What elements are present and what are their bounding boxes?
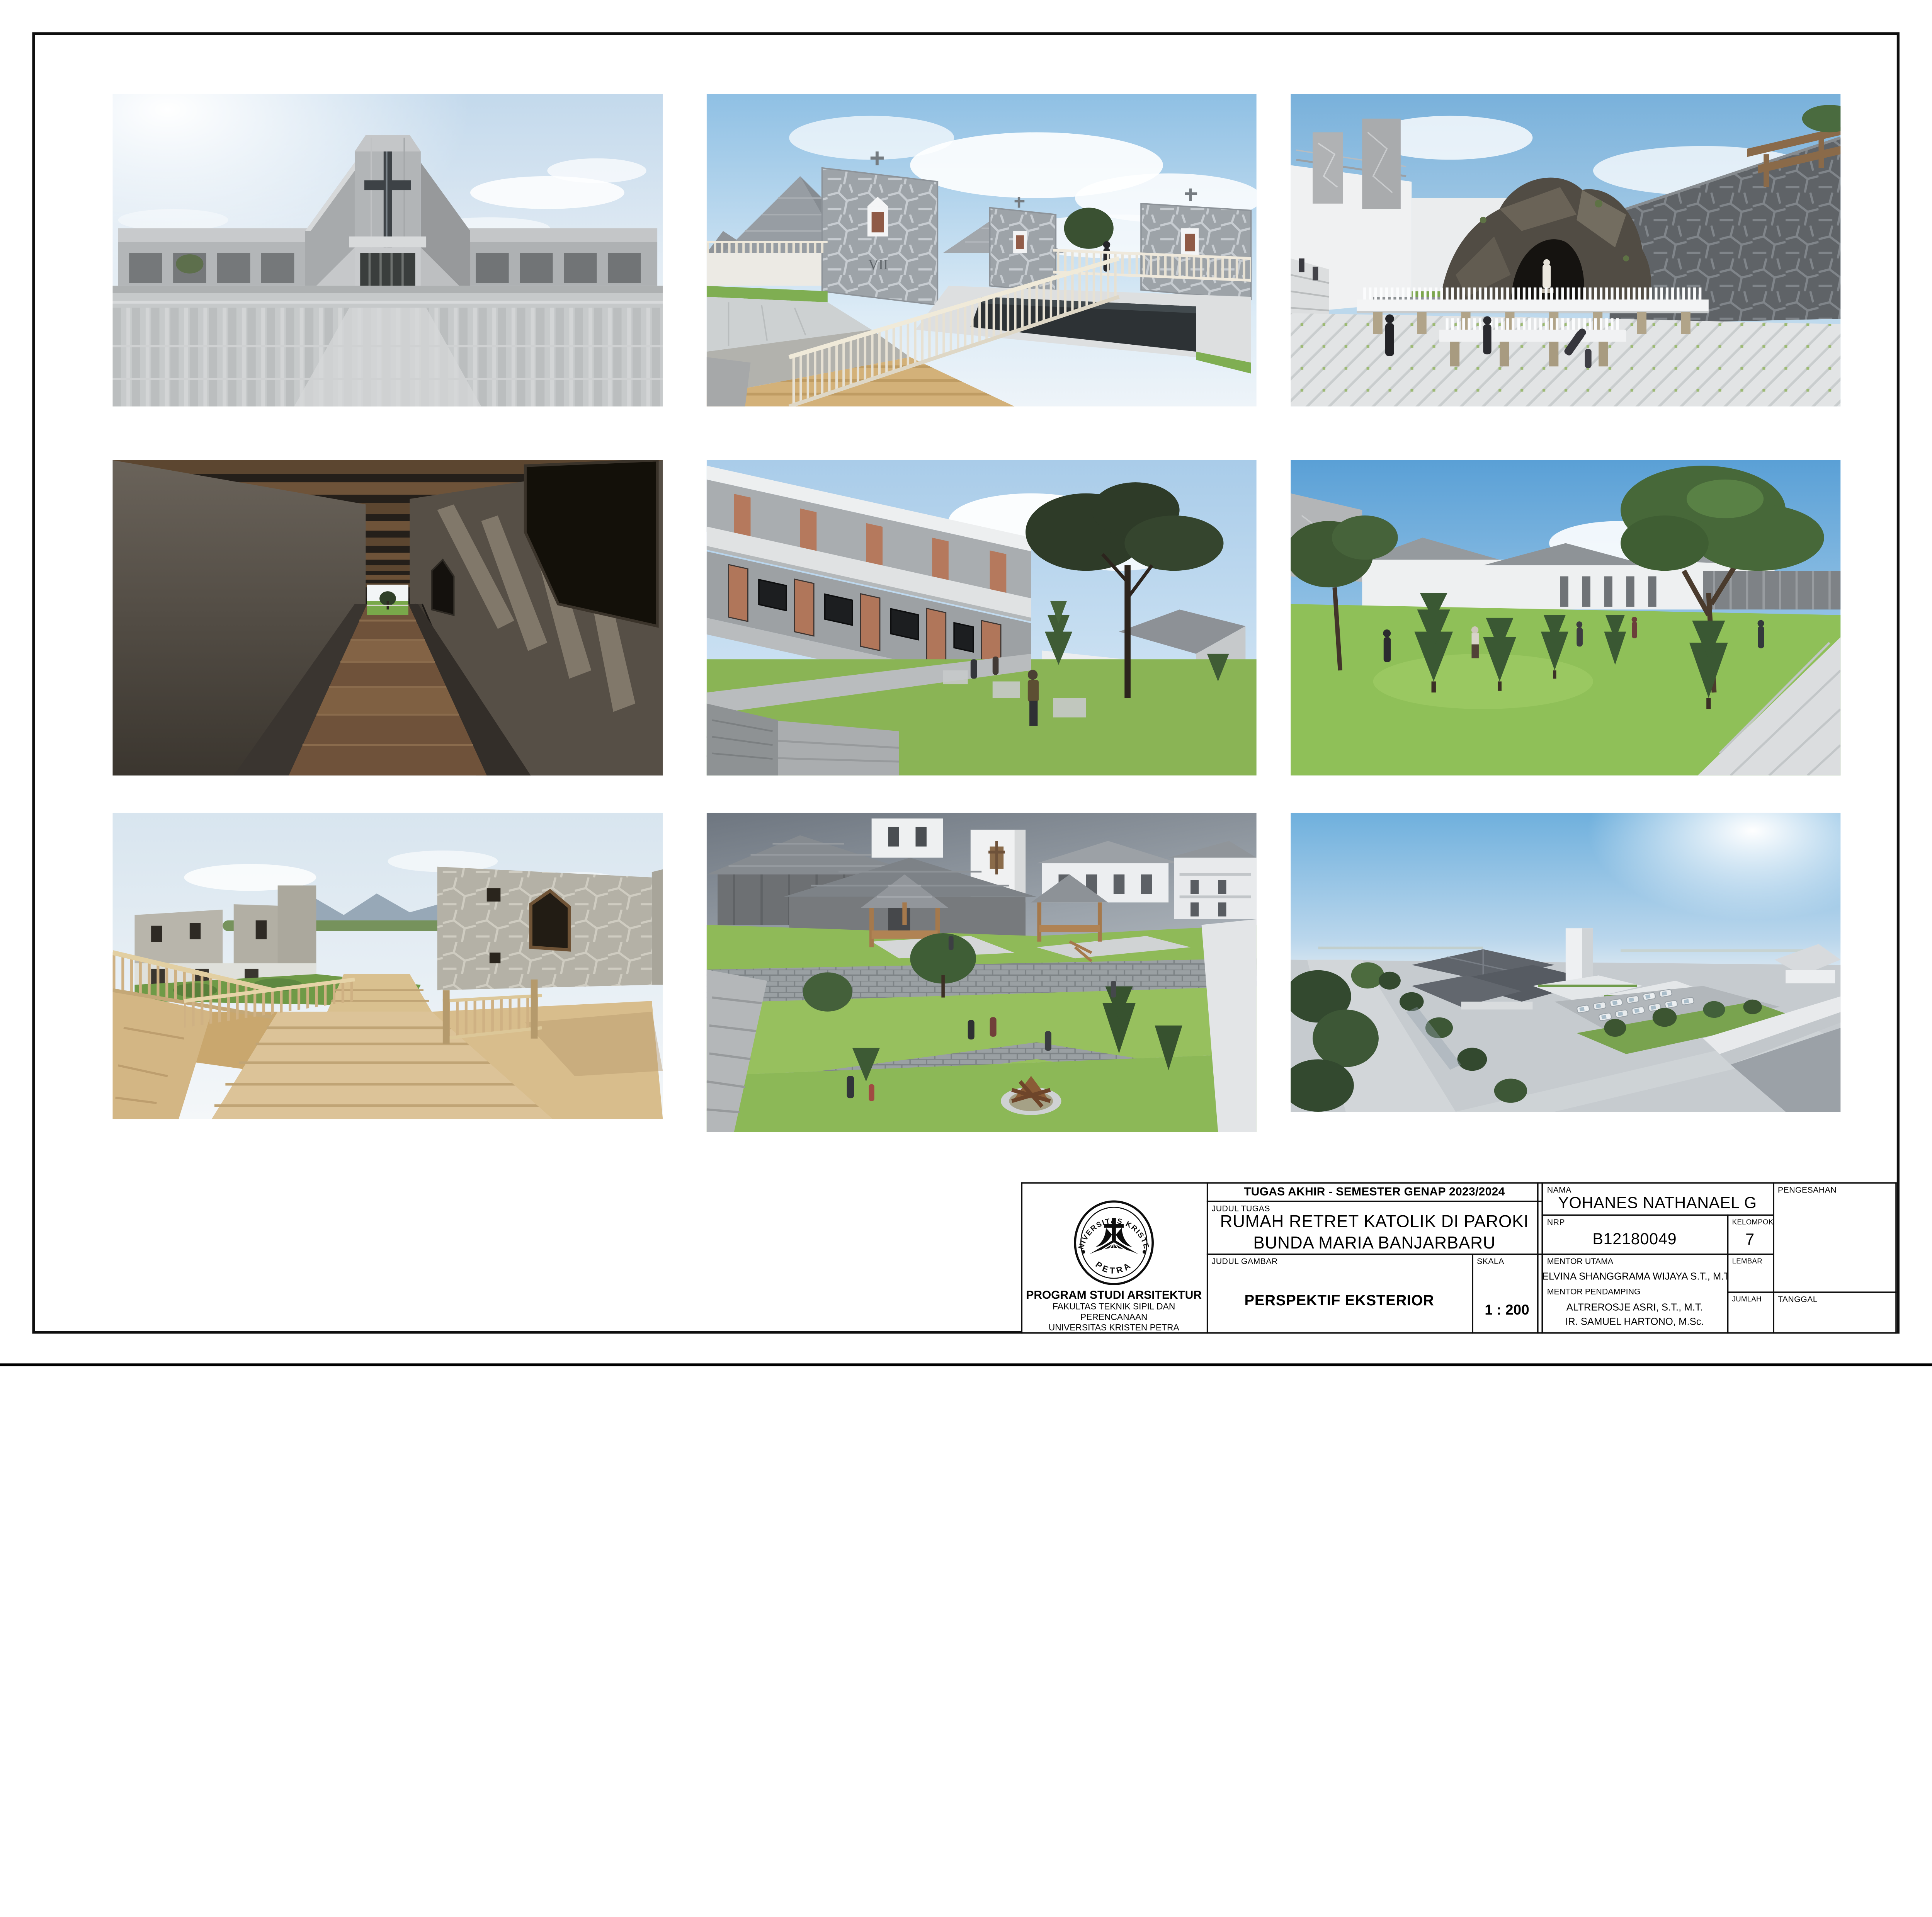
jumlah-label: JUMLAH xyxy=(1732,1295,1762,1303)
skala-cell: SKALA 1 : 200 xyxy=(1472,1254,1542,1334)
scale-value: 1 : 200 xyxy=(1485,1302,1529,1318)
courtyard xyxy=(707,654,1257,776)
render-terraced-garden xyxy=(707,813,1257,1132)
kelompok-cell: KELOMPOK 7 xyxy=(1727,1214,1773,1254)
nrp-cell: NRP B12180049 xyxy=(1542,1214,1727,1254)
lembar-cell: LEMBAR xyxy=(1727,1254,1773,1291)
mentor-pendamping-label: MENTOR PENDAMPING xyxy=(1542,1282,1727,1296)
header-cell: TUGAS AKHIR - SEMESTER GENAP 2023/2024 xyxy=(1207,1182,1542,1201)
tb-line-h4 xyxy=(1727,1291,1897,1293)
render-aerial-site xyxy=(1291,813,1840,1112)
tb-line-right xyxy=(1895,1182,1897,1334)
tanggal-cell: TANGGAL xyxy=(1773,1291,1897,1334)
title-block: UNIVERSITAS KRISTEN PETRA PROGRAM STUDI … xyxy=(1021,1182,1897,1334)
tb-line-left xyxy=(1021,1182,1023,1334)
judul-gambar-label: JUDUL GAMBAR xyxy=(1212,1257,1278,1266)
kelompok-label: KELOMPOK xyxy=(1732,1218,1773,1226)
tb-line-v1 xyxy=(1207,1182,1208,1334)
station-numeral: VII xyxy=(868,257,888,272)
institution-cell: UNIVERSITAS KRISTEN PETRA PROGRAM STUDI … xyxy=(1021,1182,1207,1334)
render-timber-corridor xyxy=(112,460,663,776)
project-title-line2: BUNDA MARIA BANJARBARU xyxy=(1253,1232,1495,1254)
tb-line-h2 xyxy=(1541,1214,1773,1216)
screen-bottom-edge xyxy=(0,1363,1932,1366)
group-number: 7 xyxy=(1745,1230,1755,1249)
nama-cell: NAMA YOHANES NATHANAEL G xyxy=(1542,1182,1773,1214)
perimeter-wall xyxy=(707,253,828,286)
institution-text: PROGRAM STUDI ARSITEKTUR FAKULTAS TEKNIK… xyxy=(1021,1289,1207,1334)
mentor-cell: MENTOR UTAMA ELVINA SHANGGRAMA WIJAYA S.… xyxy=(1542,1254,1727,1334)
course-header: TUGAS AKHIR - SEMESTER GENAP 2023/2024 xyxy=(1244,1185,1505,1198)
judul-tugas-cell: JUDUL TUGAS RUMAH RETRET KATOLIK DI PARO… xyxy=(1207,1201,1542,1254)
mentor-utama-label: MENTOR UTAMA xyxy=(1542,1254,1727,1266)
svg-text:PETRA: PETRA xyxy=(1094,1260,1134,1276)
student-id: B12180049 xyxy=(1592,1230,1677,1248)
seal-bottom-text: PETRA xyxy=(1094,1260,1134,1276)
stone-building-right xyxy=(437,867,663,990)
render-stations-courtyard: VII xyxy=(707,94,1257,407)
lembar-label: LEMBAR xyxy=(1732,1257,1762,1266)
tb-line-bottom xyxy=(1021,1332,1897,1334)
render-deck-amphitheatre xyxy=(112,813,663,1119)
judul-gambar-cell: JUDUL GAMBAR PERSPEKTIF EKSTERIOR xyxy=(1207,1254,1472,1334)
drawing-title: PERSPEKTIF EKSTERIOR xyxy=(1244,1292,1434,1309)
tanggal-label: TANGGAL xyxy=(1778,1295,1818,1304)
fakultas: FAKULTAS TEKNIK SIPIL DAN PERENCANAAN xyxy=(1021,1301,1207,1322)
jumlah-cell: JUMLAH xyxy=(1727,1291,1773,1334)
render-dormitory-courtyard xyxy=(707,460,1257,776)
render-garden-lawn xyxy=(1291,460,1840,776)
tb-line-top xyxy=(1021,1182,1897,1184)
tb-line-h1 xyxy=(1207,1201,1543,1202)
tb-line-v2b xyxy=(1541,1182,1543,1334)
mentor-pendamping-name-1: ALTREROSJE ASRI, S.T., M.T. xyxy=(1542,1301,1727,1313)
university-seal-icon: UNIVERSITAS KRISTEN PETRA xyxy=(1073,1200,1155,1286)
presentation-board: VII xyxy=(0,0,1932,1366)
pengesahan-label: PENGESAHAN xyxy=(1778,1186,1837,1195)
mentor-utama-name: ELVINA SHANGGRAMA WIJAYA S.T., M.T. xyxy=(1542,1271,1727,1282)
mentor-pendamping-name-2: IR. SAMUEL HARTONO, M.Sc. xyxy=(1542,1316,1727,1327)
project-title-line1: RUMAH RETRET KATOLIK DI PAROKI xyxy=(1220,1211,1529,1233)
student-name: YOHANES NATHANAEL G xyxy=(1558,1193,1757,1212)
tb-line-v3 xyxy=(1773,1182,1774,1334)
universitas: UNIVERSITAS KRISTEN PETRA xyxy=(1021,1322,1207,1332)
pengesahan-cell: PENGESAHAN xyxy=(1773,1182,1897,1291)
program-studi: PROGRAM STUDI ARSITEKTUR xyxy=(1021,1289,1207,1301)
render-grotto-plaza xyxy=(1291,94,1840,407)
end-opening xyxy=(367,585,408,615)
render-church-facade xyxy=(112,94,663,407)
skala-label: SKALA xyxy=(1477,1257,1504,1266)
tb-line-kelompok xyxy=(1727,1214,1729,1334)
tb-line-skala xyxy=(1472,1254,1473,1334)
plaza xyxy=(112,286,663,407)
tb-line-v2a xyxy=(1537,1182,1539,1334)
tb-line-h3 xyxy=(1207,1254,1773,1255)
